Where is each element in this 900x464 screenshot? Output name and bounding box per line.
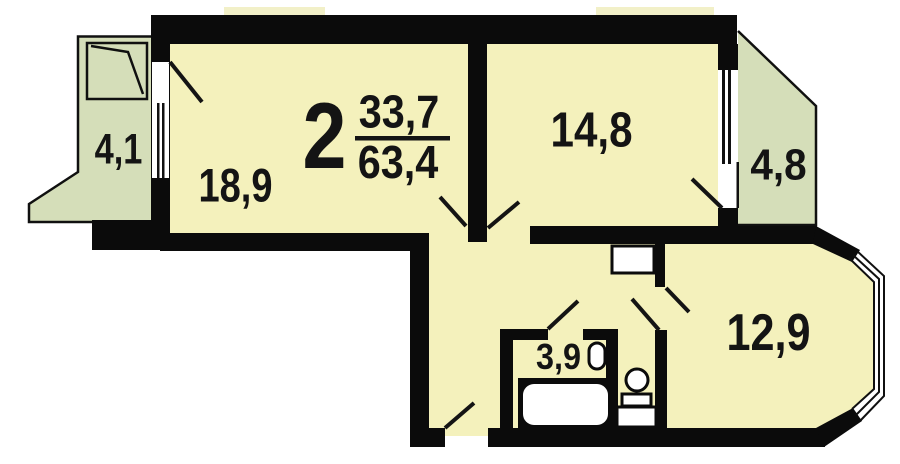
svg-text:4,8: 4,8: [750, 140, 806, 189]
svg-text:63,4: 63,4: [358, 137, 439, 189]
svg-text:4,1: 4,1: [95, 126, 143, 173]
svg-text:3,9: 3,9: [536, 337, 581, 377]
svg-text:2: 2: [303, 84, 347, 189]
svg-text:14,8: 14,8: [551, 103, 633, 158]
svg-text:33,7: 33,7: [359, 87, 440, 139]
svg-text:18,9: 18,9: [198, 160, 272, 213]
svg-text:12,9: 12,9: [727, 304, 811, 362]
